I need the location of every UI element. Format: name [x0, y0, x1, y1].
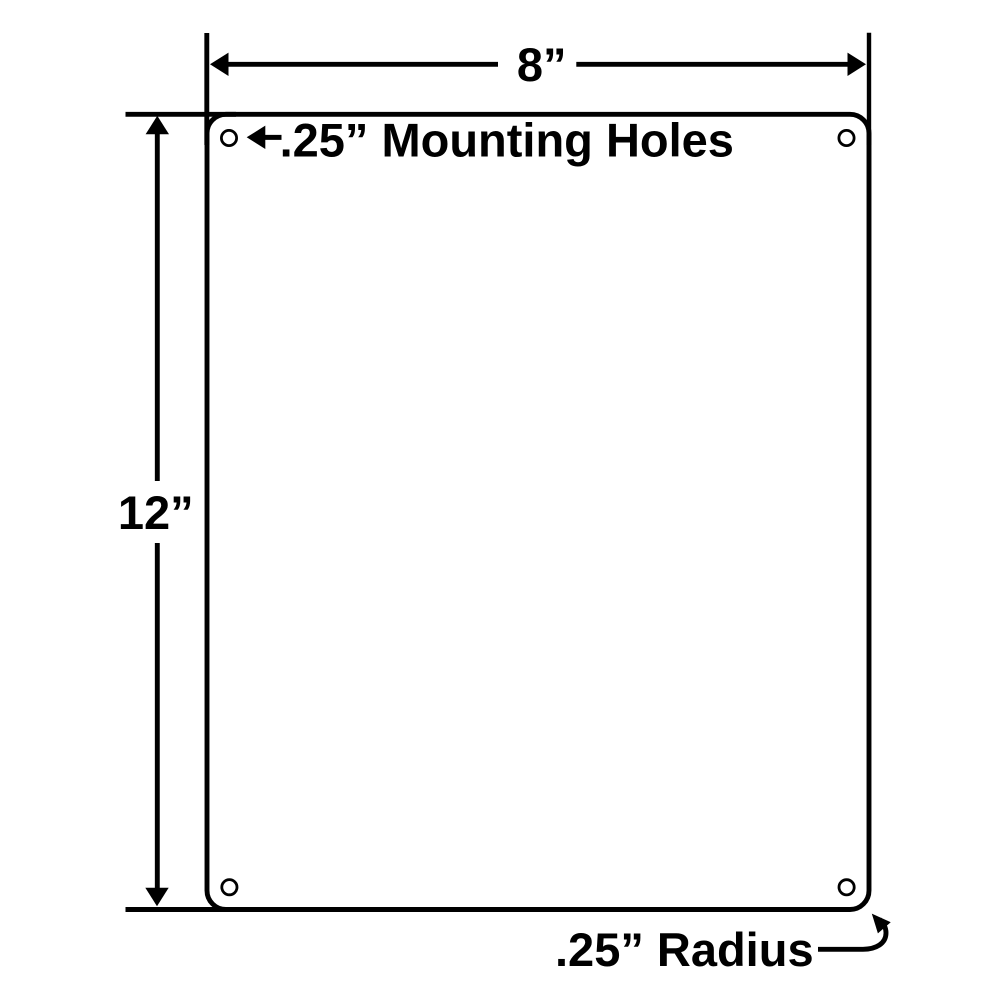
svg-text:8”: 8” [517, 38, 567, 91]
svg-text:.25” Mounting Holes: .25” Mounting Holes [280, 113, 734, 166]
svg-text:.25” Radius: .25” Radius [555, 923, 814, 976]
svg-text:12”: 12” [118, 486, 194, 539]
